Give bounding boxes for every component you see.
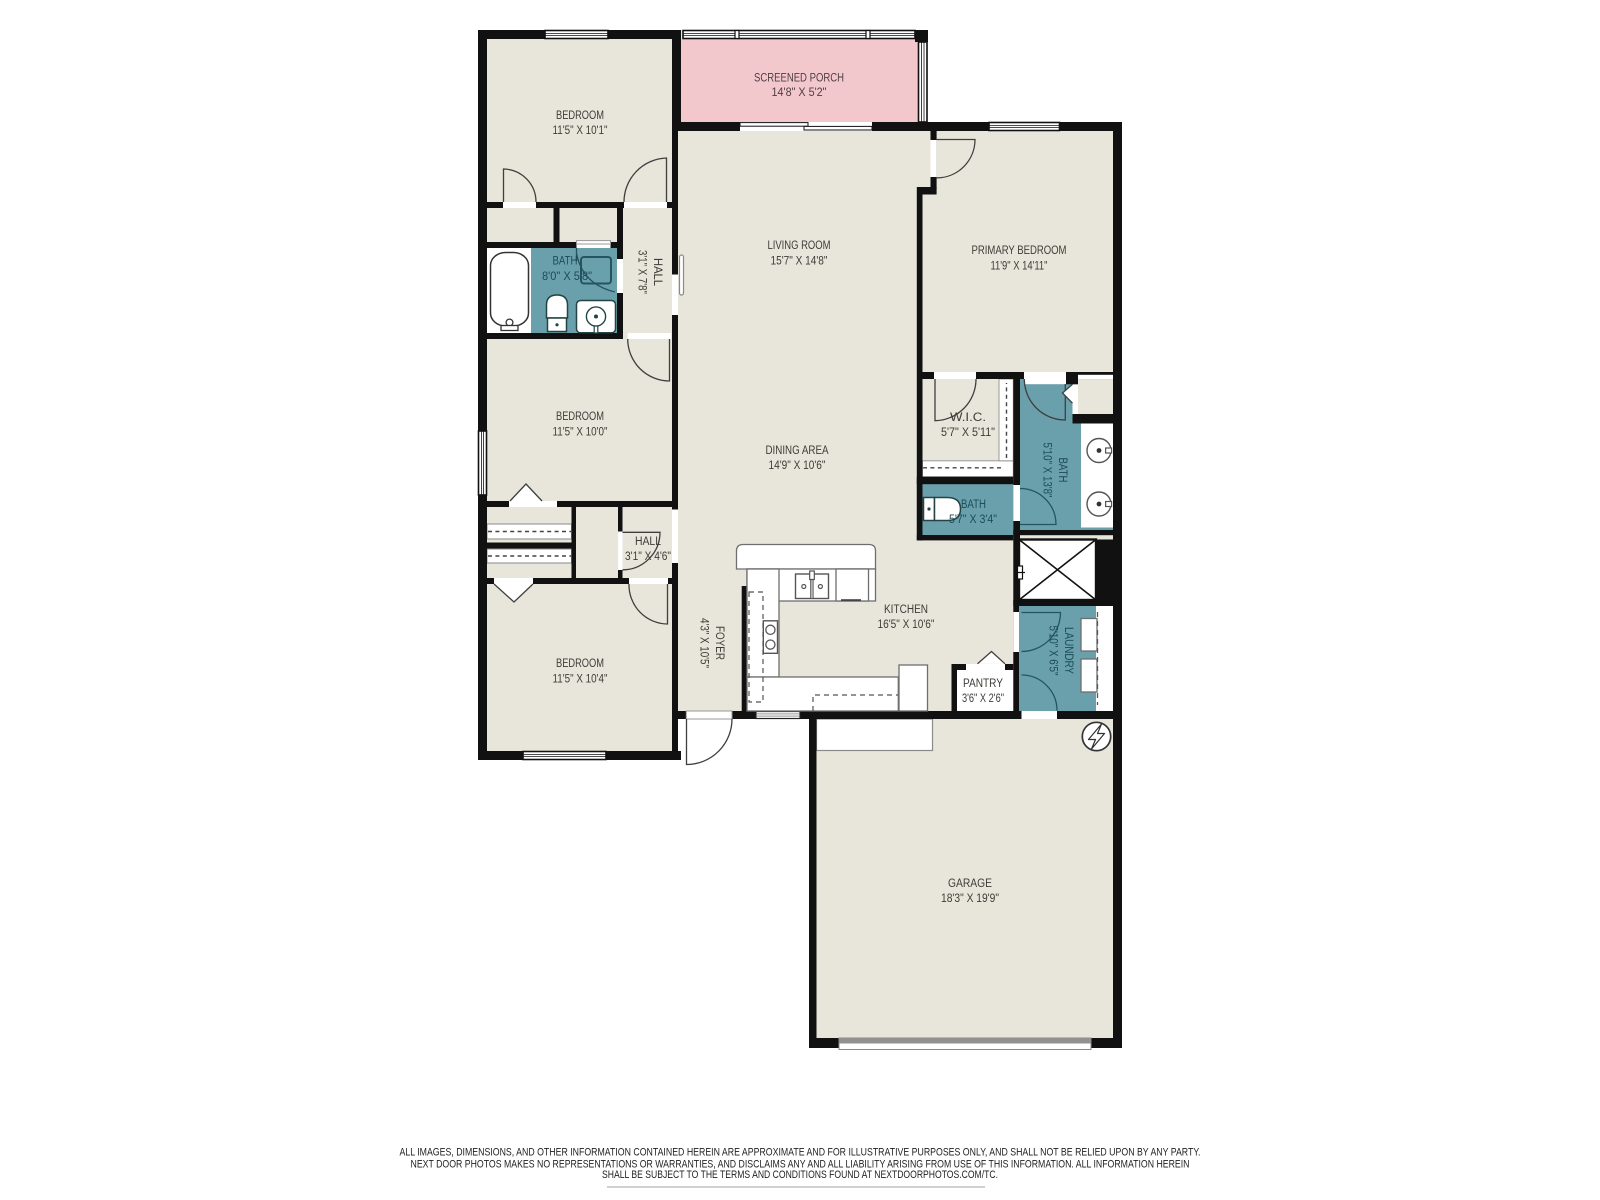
svg-text:SHALL BE SUBJECT TO THE TERMS: SHALL BE SUBJECT TO THE TERMS AND CONDIT… <box>602 1169 998 1181</box>
svg-text:11'5" X 10'0": 11'5" X 10'0" <box>553 424 608 438</box>
svg-text:5'10" X 6'5": 5'10" X 6'5" <box>1047 626 1061 676</box>
svg-text:W.I.C.: W.I.C. <box>950 410 986 424</box>
svg-text:11'9" X 14'11": 11'9" X 14'11" <box>991 258 1048 272</box>
svg-text:14'8" X 5'2": 14'8" X 5'2" <box>772 85 827 99</box>
svg-text:ALL IMAGES, DIMENSIONS, AND OT: ALL IMAGES, DIMENSIONS, AND OTHER INFORM… <box>400 1147 1201 1159</box>
svg-text:BEDROOM: BEDROOM <box>556 108 604 122</box>
svg-text:DINING AREA: DINING AREA <box>766 443 830 457</box>
svg-text:5'7" X 5'11": 5'7" X 5'11" <box>941 425 995 439</box>
svg-text:HALL: HALL <box>635 534 661 548</box>
svg-text:SCREENED PORCH: SCREENED PORCH <box>754 71 844 85</box>
svg-text:11'5" X 10'1": 11'5" X 10'1" <box>553 123 608 137</box>
svg-text:KITCHEN: KITCHEN <box>884 602 928 616</box>
svg-text:18'3" X 19'9": 18'3" X 19'9" <box>941 891 999 905</box>
svg-text:3'6" X 2'6": 3'6" X 2'6" <box>962 691 1004 705</box>
svg-text:BATH: BATH <box>553 254 578 268</box>
svg-text:3'1" X 4'6": 3'1" X 4'6" <box>625 549 671 563</box>
svg-text:5'10" X 13'8": 5'10" X 13'8" <box>1041 443 1055 498</box>
svg-text:3'1" X 7'8": 3'1" X 7'8" <box>636 250 650 294</box>
svg-text:GARAGE: GARAGE <box>948 876 992 890</box>
svg-text:LIVING ROOM: LIVING ROOM <box>768 238 831 252</box>
svg-text:BEDROOM: BEDROOM <box>556 656 604 670</box>
svg-text:BEDROOM: BEDROOM <box>556 409 604 423</box>
svg-text:4'3" X 10'5": 4'3" X 10'5" <box>698 618 712 668</box>
svg-text:14'9" X 10'6": 14'9" X 10'6" <box>769 458 826 472</box>
svg-text:BATH: BATH <box>1056 458 1070 483</box>
svg-text:PANTRY: PANTRY <box>963 676 1003 690</box>
svg-text:16'5" X 10'6": 16'5" X 10'6" <box>878 617 935 631</box>
svg-text:FOYER: FOYER <box>713 626 727 660</box>
svg-text:15'7" X 14'8": 15'7" X 14'8" <box>771 253 828 267</box>
svg-text:PRIMARY BEDROOM: PRIMARY BEDROOM <box>972 243 1067 257</box>
svg-text:HALL: HALL <box>651 258 665 286</box>
svg-text:BATH: BATH <box>961 497 986 511</box>
svg-text:5'7" X 3'4": 5'7" X 3'4" <box>949 512 997 526</box>
svg-text:8'0" X 5'8": 8'0" X 5'8" <box>542 269 592 283</box>
svg-text:LAUNDRY: LAUNDRY <box>1062 627 1076 674</box>
svg-text:11'5" X 10'4": 11'5" X 10'4" <box>553 672 608 686</box>
